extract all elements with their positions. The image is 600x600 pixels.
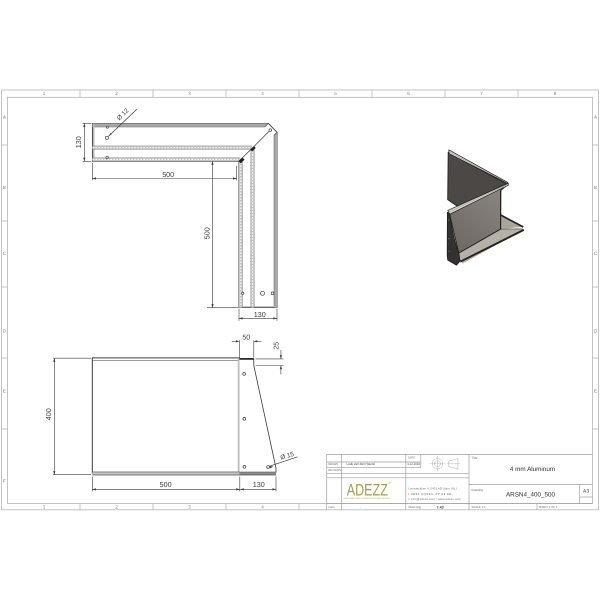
svg-text:SHEET 1 OF 1: SHEET 1 OF 1 [539, 505, 558, 509]
svg-text:3: 3 [188, 504, 191, 509]
svg-text:1: 1 [43, 91, 46, 96]
svg-text:1: 1 [43, 504, 46, 509]
svg-text:B: B [3, 185, 6, 190]
svg-text:DRAWN: DRAWN [328, 463, 338, 466]
svg-text:3-12-2019: 3-12-2019 [407, 462, 420, 466]
svg-text:Title: Title [472, 456, 478, 460]
svg-text:ADEZZ: ADEZZ [347, 480, 388, 499]
svg-text:E: E [594, 389, 597, 394]
svg-text:8: 8 [554, 91, 557, 96]
svg-text:2: 2 [115, 504, 118, 509]
svg-text:4: 4 [261, 504, 264, 509]
svg-text:B: B [594, 185, 597, 190]
svg-text:130: 130 [254, 310, 266, 319]
svg-text:Drawing: Drawing [472, 488, 484, 492]
svg-text:Mass (kg): Mass (kg) [409, 505, 422, 509]
svg-text:5: 5 [334, 91, 337, 96]
svg-text:500: 500 [162, 170, 174, 179]
svg-text:4: 4 [261, 91, 264, 96]
svg-text:Color: Color [328, 506, 335, 509]
svg-text:500: 500 [160, 480, 172, 489]
svg-text:7.43: 7.43 [437, 505, 444, 509]
svg-text:ARSN4_400_500: ARSN4_400_500 [506, 491, 556, 498]
svg-text:3: 3 [188, 91, 191, 96]
svg-text:130: 130 [74, 136, 83, 148]
svg-text:-: - [360, 506, 361, 509]
svg-text:25: 25 [273, 342, 280, 350]
svg-text:E: E [3, 389, 6, 394]
svg-text:F: F [3, 479, 6, 484]
svg-text:WORLDWIDE GARDEN PRODUCTS FOR: WORLDWIDE GARDEN PRODUCTS FOR PROFESSION… [344, 497, 390, 500]
svg-text:500: 500 [202, 227, 211, 239]
svg-text:DATE: DATE [408, 457, 415, 460]
svg-text:4 mm Aluminum: 4 mm Aluminum [510, 466, 555, 473]
svg-text:A3: A3 [583, 489, 589, 495]
svg-text:50: 50 [242, 335, 250, 342]
svg-text:t 0031 (0)413- 27 41 68.: t 0031 (0)413- 27 41 68. [408, 492, 452, 496]
svg-text:2: 2 [115, 91, 118, 96]
svg-text:SCALE 1:5: SCALE 1:5 [472, 505, 486, 509]
svg-text:130: 130 [253, 480, 265, 489]
svg-text:e info@adezz.com / www.adezz.c: e info@adezz.com / www.adezz.com [408, 497, 461, 501]
svg-text:6: 6 [407, 91, 410, 96]
svg-text:7: 7 [480, 91, 483, 96]
svg-text:400: 400 [44, 408, 53, 420]
svg-text:Leemstekken 4, 5451 AD Uden (N: Leemstekken 4, 5451 AD Uden (NL) [408, 487, 456, 491]
svg-text:REVISION: REVISION [328, 469, 341, 472]
svg-text:Luuk van den Heuvel: Luuk van den Heuvel [347, 462, 376, 466]
